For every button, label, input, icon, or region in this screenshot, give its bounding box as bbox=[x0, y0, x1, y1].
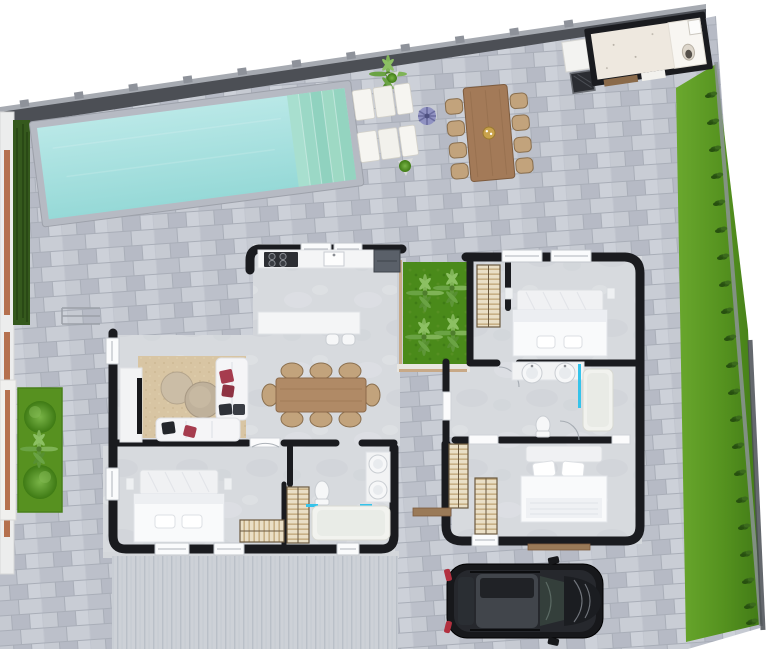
window bbox=[214, 543, 244, 555]
car bbox=[444, 556, 603, 646]
driveway bbox=[103, 551, 399, 649]
island-stool bbox=[326, 334, 339, 345]
door-leaf bbox=[443, 392, 451, 420]
floor-plan-render bbox=[0, 0, 768, 649]
blue-agave-plant bbox=[418, 107, 436, 125]
window bbox=[502, 250, 542, 262]
tv bbox=[137, 378, 142, 434]
bed-headboard bbox=[526, 446, 602, 462]
hedge-left bbox=[13, 120, 30, 325]
blanket bbox=[526, 498, 602, 518]
side-garden bbox=[0, 380, 62, 520]
pillow bbox=[537, 336, 555, 348]
window bbox=[472, 534, 498, 546]
living-room bbox=[120, 356, 248, 442]
dining-table bbox=[276, 378, 366, 412]
pillow bbox=[182, 515, 202, 528]
shower-glass bbox=[578, 364, 581, 408]
door-leaf bbox=[612, 435, 630, 444]
floor-plan-svg bbox=[0, 0, 768, 649]
island-stool bbox=[342, 334, 355, 345]
toilet bbox=[315, 481, 329, 501]
door-leaf bbox=[469, 435, 498, 444]
courtyard-garden bbox=[397, 258, 472, 372]
window bbox=[551, 250, 591, 262]
car-windshield bbox=[540, 576, 564, 626]
pillow bbox=[155, 515, 175, 528]
bench bbox=[528, 544, 590, 550]
car-rear-glass bbox=[458, 577, 474, 625]
bench bbox=[413, 508, 451, 516]
stove bbox=[264, 252, 298, 267]
pillow bbox=[564, 336, 582, 348]
car-sunroof bbox=[480, 578, 534, 598]
window bbox=[106, 468, 119, 500]
bed-headboard bbox=[140, 470, 218, 495]
bed-headboard bbox=[517, 290, 603, 312]
window bbox=[337, 543, 359, 555]
bush bbox=[24, 401, 56, 433]
table-centerpiece bbox=[482, 126, 495, 139]
bush bbox=[23, 465, 57, 499]
pool-steps bbox=[287, 88, 356, 187]
kitchen-island bbox=[258, 312, 360, 334]
window bbox=[155, 543, 189, 555]
window bbox=[106, 338, 119, 364]
